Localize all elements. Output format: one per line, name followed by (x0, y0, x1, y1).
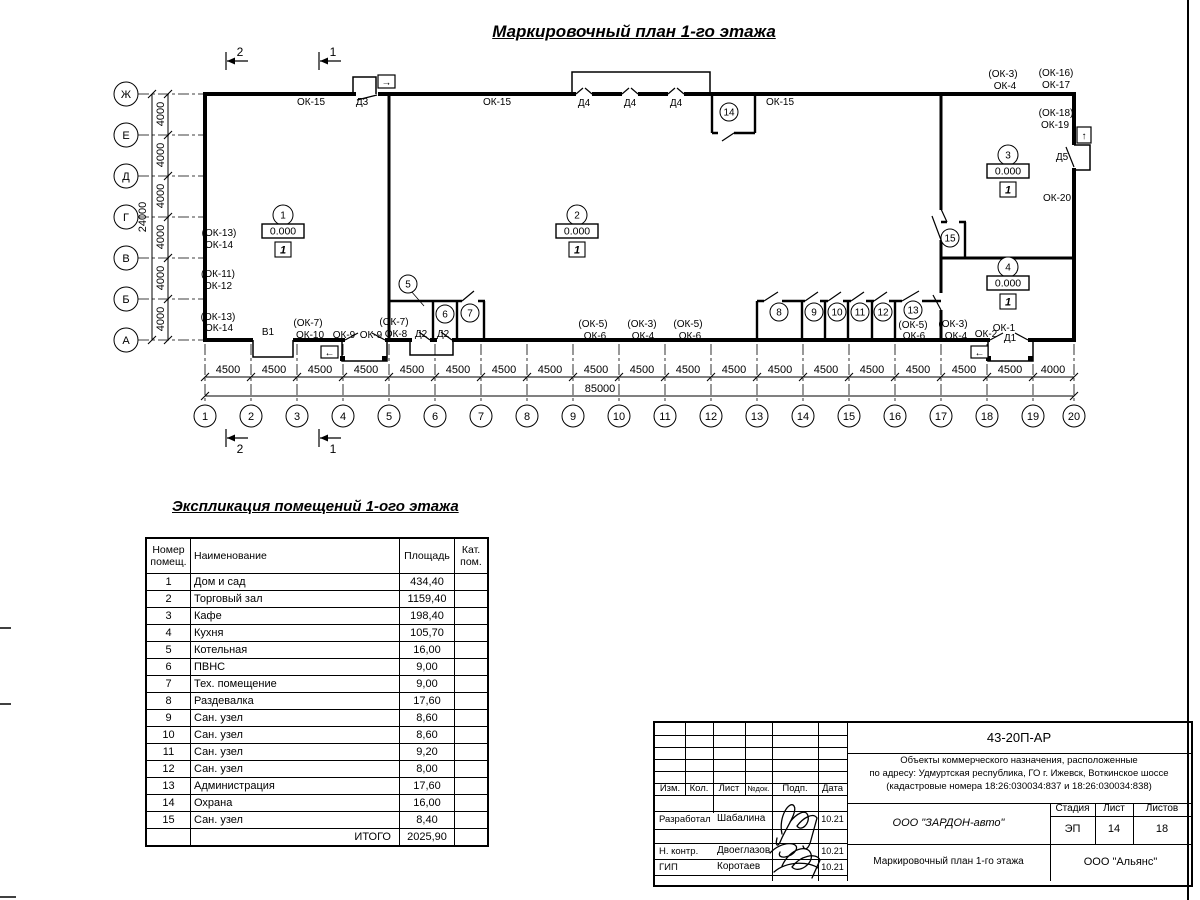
header-list: Лист (713, 783, 745, 795)
opening-label: ОК-9 (360, 330, 383, 341)
explication-cell-area: 105,70 (400, 625, 455, 642)
explication-cell-area: 198,40 (400, 608, 455, 625)
porch-corner-marks (340, 356, 1033, 361)
wall-mark (847, 92, 851, 96)
dim-4000: 4000 (155, 184, 167, 208)
opening-label: ОК-4 (632, 331, 655, 342)
opening-label: ОК-6 (584, 331, 607, 342)
opening-label: Д2 (437, 329, 450, 340)
wall-mark (1031, 92, 1035, 96)
explication-cell-cat (455, 591, 489, 608)
explication-cell-num: 11 (146, 744, 191, 761)
dim-4500: 4500 (676, 364, 700, 376)
explication-cell-cat (455, 608, 489, 625)
role-date: 10.21 (818, 845, 847, 858)
wall-mark (387, 92, 391, 96)
dim-4500: 4500 (216, 364, 240, 376)
project-description-line1: Объекты коммерческого назначения, распол… (851, 754, 1187, 767)
dim-4500: 4500 (860, 364, 884, 376)
opening-label: Д1 (1004, 333, 1017, 344)
room-number: 7 (467, 309, 473, 320)
explication-cell-num: 15 (146, 812, 191, 829)
explication-cell-name: Сан. узел (191, 710, 400, 727)
room-number: 15 (944, 234, 956, 245)
row-axis-label: Е (122, 130, 129, 142)
elevation-value: 0.000 (995, 166, 1021, 178)
opening-label: (ОК-13) (202, 228, 237, 239)
explication-row: 2Торговый зал1159,40 (146, 591, 488, 608)
explication-row: 5Котельная16,00 (146, 642, 488, 659)
col-axis-label: 5 (386, 411, 392, 423)
explication-cell-cat (455, 812, 489, 829)
wall-mark (709, 92, 713, 96)
wall-mark (571, 338, 575, 342)
row-axis-label: В (122, 253, 129, 265)
opening-label: ОК-14 (205, 240, 233, 251)
doc-number: 43-20П-АР (847, 725, 1191, 751)
dim-4500: 4500 (768, 364, 792, 376)
plan-title: Маркировочный план 1-го этажа (492, 22, 776, 42)
explication-row: 1Дом и сад434,40 (146, 574, 488, 591)
explication-cell-area: 9,00 (400, 659, 455, 676)
room-number: 1 (280, 211, 286, 222)
opening-label: ОК-12 (204, 281, 232, 292)
col-header-number: Номер помещ. (146, 538, 191, 574)
explication-cell-cat (455, 574, 489, 591)
col-axis-label: 13 (751, 411, 763, 423)
explication-cell-name: Сан. узел (191, 812, 400, 829)
explication-cell-num: 7 (146, 676, 191, 693)
wall-mark (801, 338, 805, 342)
explication-cell-name: Тех. помещение (191, 676, 400, 693)
opening-label: (ОК-3) (988, 69, 1017, 80)
dim-4000: 4000 (155, 307, 167, 331)
role-date: 10.21 (818, 861, 847, 874)
opening-label: ОК-19 (1041, 120, 1069, 131)
col-axis-label: 6 (432, 411, 438, 423)
role-name: Коротаев (713, 861, 776, 874)
explication-table: Номер помещ. Наименование Площадь Кат. п… (145, 537, 489, 847)
wall-mark (1072, 338, 1076, 342)
explication-cell-area: 9,20 (400, 744, 455, 761)
wall-mark (709, 338, 713, 342)
col-axis-label: 16 (889, 411, 901, 423)
opening-label: (ОК-5) (578, 319, 607, 330)
wall-mark (203, 338, 207, 342)
header-kol: Кол. (685, 783, 713, 795)
wall-mark (1031, 338, 1035, 342)
dim-4500: 4500 (262, 364, 286, 376)
room-number: 9 (811, 308, 817, 319)
opening-label: ОК-15 (766, 97, 794, 108)
explication-cell-area: 8,00 (400, 761, 455, 778)
opening-label: (ОК-3) (627, 319, 656, 330)
explication-cell-cat (455, 744, 489, 761)
dim-total-85000: 85000 (585, 383, 616, 395)
explication-cell-area: 8,40 (400, 812, 455, 829)
section-mark-number: 1 (330, 442, 337, 456)
opening-label: (ОК-7) (293, 318, 322, 329)
explication-cell-area: 8,60 (400, 727, 455, 744)
dim-4500: 4500 (400, 364, 424, 376)
dim-4000: 4000 (155, 143, 167, 167)
opening-label: (ОК-5) (673, 319, 702, 330)
wall-mark (203, 92, 207, 96)
company-name: ООО "ЗАРДОН-авто" (847, 803, 1050, 844)
wall-mark (203, 297, 207, 301)
col-axis-label: 3 (294, 411, 300, 423)
wall-mark (203, 215, 207, 219)
opening-label: ОК-8 (385, 329, 408, 340)
explication-cell-name: Кухня (191, 625, 400, 642)
opening-label: В1 (262, 327, 275, 338)
opening-label: Д4 (578, 98, 591, 109)
opening-label: (ОК-18) (1039, 108, 1074, 119)
section-mark-arrow (320, 58, 328, 65)
sheets-label: Листов (1133, 803, 1191, 816)
explication-cell-num: 9 (146, 710, 191, 727)
opening-label: (ОК-16) (1039, 68, 1074, 79)
explication-cell-num: 12 (146, 761, 191, 778)
explication-cell-name: Дом и сад (191, 574, 400, 591)
col-axis-label: 20 (1068, 411, 1080, 423)
explication-header-row: Номер помещ. Наименование Площадь Кат. п… (146, 538, 488, 574)
room-number: 4 (1005, 263, 1011, 274)
explication-total-row: ИТОГО2025,90 (146, 829, 488, 847)
col-axis-label: 8 (524, 411, 530, 423)
dim-4000: 4000 (155, 225, 167, 249)
explication-cell-area: 8,60 (400, 710, 455, 727)
explication-cell-name: ПВНС (191, 659, 400, 676)
role-title: Разработал (655, 813, 717, 826)
opening-label: (ОК-7) (379, 317, 408, 328)
explication-cell-area: 16,00 (400, 795, 455, 812)
col-axis-label: 11 (659, 411, 670, 423)
wall-mark (847, 338, 851, 342)
wall-mark (341, 92, 345, 96)
opening-label: ОК-6 (679, 331, 702, 342)
explication-cell-cat (455, 727, 489, 744)
role-date: 10.21 (818, 813, 847, 826)
dim-4500: 4500 (998, 364, 1022, 376)
dim-4500: 4500 (354, 364, 378, 376)
sheet-label: Лист (1095, 803, 1133, 816)
explication-cell-cat (455, 761, 489, 778)
col-axis-label: 9 (570, 411, 576, 423)
floor-type-value: 1 (280, 245, 286, 257)
explication-row: 14Охрана16,00 (146, 795, 488, 812)
dim-4500: 4500 (446, 364, 470, 376)
room-number: 8 (776, 308, 782, 319)
section-mark-arrow (227, 435, 235, 442)
elevation-value: 0.000 (270, 226, 296, 238)
plan-annotations: ЖЕДГВБА123456789101112131415161718192024… (114, 45, 1091, 456)
room-number: 13 (907, 306, 919, 317)
wall-mark (985, 92, 989, 96)
project-description-line2: по адресу: Удмуртская республика, ГО г. … (851, 767, 1187, 780)
wall-mark (1072, 92, 1076, 96)
total-empty (455, 829, 489, 847)
explication-cell-num: 13 (146, 778, 191, 795)
total-empty (146, 829, 191, 847)
wall-mark (203, 174, 207, 178)
exit-arrow-icon: ↑ (1082, 131, 1087, 142)
explication-cell-name: Раздевалка (191, 693, 400, 710)
explication-cell-cat (455, 659, 489, 676)
partition-walls (389, 94, 966, 340)
sheet-value: 14 (1095, 816, 1133, 844)
opening-label: (ОК-13) (201, 312, 236, 323)
opening-label: Д4 (670, 98, 683, 109)
header-data: Дата (818, 783, 847, 795)
col-axis-label: 12 (705, 411, 717, 423)
floor-type-value: 1 (574, 245, 580, 257)
col-axis-label: 17 (935, 411, 947, 423)
row-axis-label: Г (123, 212, 129, 224)
col-axis-label: 14 (797, 411, 809, 423)
room-number: 6 (442, 310, 448, 321)
explication-cell-name: Сан. узел (191, 761, 400, 778)
explication-row: 11Сан. узел9,20 (146, 744, 488, 761)
wall-mark (893, 338, 897, 342)
dim-4500: 4500 (722, 364, 746, 376)
explication-cell-name: Охрана (191, 795, 400, 812)
wall-mark (249, 338, 253, 342)
wall-mark (525, 338, 529, 342)
explication-cell-area: 434,40 (400, 574, 455, 591)
opening-label: (ОК-5) (898, 320, 927, 331)
col-axis-label: 2 (248, 411, 254, 423)
col-header-category: Кат. пом. (455, 538, 489, 574)
explication-cell-area: 17,60 (400, 778, 455, 795)
opening-label: (ОК-11) (201, 269, 235, 280)
col-axis-label: 15 (843, 411, 855, 423)
explication-title: Экспликация помещений 1-ого этажа (172, 498, 459, 515)
role-title: Н. контр. (655, 845, 717, 858)
opening-label: ОК-17 (1042, 80, 1070, 91)
explication-cell-area: 17,60 (400, 693, 455, 710)
explication-cell-cat (455, 642, 489, 659)
leader-line-room5 (411, 291, 424, 306)
room-number: 12 (877, 308, 889, 319)
opening-label: ОК-9 (333, 330, 356, 341)
section-mark-number: 1 (330, 45, 337, 59)
drawing-sheet: ЖЕДГВБА123456789101112131415161718192024… (0, 0, 1200, 900)
interior-walls (389, 94, 1074, 340)
explication-cell-num: 5 (146, 642, 191, 659)
project-description-line3: (кадастровые номера 18:26:030034:837 и 1… (851, 780, 1187, 793)
opening-label: ОК-20 (1043, 193, 1071, 204)
dim-4500: 4500 (308, 364, 332, 376)
sheets-value: 18 (1133, 816, 1191, 844)
room-number: 3 (1005, 151, 1011, 162)
explication-cell-cat (455, 778, 489, 795)
wall-mark (203, 256, 207, 260)
explication-cell-cat (455, 625, 489, 642)
contractor-name: ООО "Альянс" (1050, 844, 1191, 881)
header-izm: Изм. (655, 783, 685, 795)
dim-4500: 4500 (814, 364, 838, 376)
dim-total-24000: 24000 (137, 202, 149, 233)
wall-mark (295, 92, 299, 96)
explication-row: 10Сан. узел8,60 (146, 727, 488, 744)
explication-cell-num: 1 (146, 574, 191, 591)
explication-cell-cat (455, 693, 489, 710)
opening-label: ОК-15 (483, 97, 511, 108)
dim-4500: 4500 (538, 364, 562, 376)
room-number: 10 (831, 308, 843, 319)
dim-4000: 4000 (155, 102, 167, 126)
explication-cell-area: 9,00 (400, 676, 455, 693)
role-name: Двоеглазов (713, 845, 776, 858)
opening-label: ОК-6 (903, 331, 926, 342)
wall-mark (663, 92, 667, 96)
row-axis-label: Ж (121, 89, 131, 101)
opening-label: Д3 (356, 97, 369, 108)
role-title: ГИП (655, 861, 717, 874)
dim-4500: 4500 (906, 364, 930, 376)
explication-cell-name: Администрация (191, 778, 400, 795)
opening-label: ОК-10 (296, 330, 324, 341)
opening-label: (ОК-3) (938, 319, 967, 330)
col-header-name: Наименование (191, 538, 400, 574)
wall-mark (203, 133, 207, 137)
explication-cell-name: Котельная (191, 642, 400, 659)
room-number: 14 (723, 108, 735, 119)
explication-cell-area: 1159,40 (400, 591, 455, 608)
exit-arrow-icon: ← (975, 348, 985, 359)
room-number: 5 (405, 280, 411, 291)
wall-mark (893, 92, 897, 96)
explication-cell-num: 10 (146, 727, 191, 744)
section-mark-number: 2 (237, 442, 244, 456)
explication-row: 4Кухня105,70 (146, 625, 488, 642)
dim-4500: 4500 (952, 364, 976, 376)
explication-row: 13Администрация17,60 (146, 778, 488, 795)
opening-label: Д4 (624, 98, 637, 109)
opening-label: ОК-15 (297, 97, 325, 108)
total-label: ИТОГО (191, 829, 400, 847)
wall-mark (433, 92, 437, 96)
explication-row: 6ПВНС9,00 (146, 659, 488, 676)
col-axis-label: 4 (340, 411, 346, 423)
explication-cell-num: 8 (146, 693, 191, 710)
wall-mark (479, 92, 483, 96)
explication-row: 3Кафе198,40 (146, 608, 488, 625)
header-ndok: №док. (745, 783, 772, 795)
wall-mark (617, 92, 621, 96)
wall-mark (755, 92, 759, 96)
elevation-value: 0.000 (995, 278, 1021, 290)
exit-arrow-icon: ← (325, 348, 335, 359)
explication-row: 12Сан. узел8,00 (146, 761, 488, 778)
wall-mark (525, 92, 529, 96)
explication-row: 9Сан. узел8,60 (146, 710, 488, 727)
room-number: 11 (855, 308, 866, 319)
explication-cell-cat (455, 795, 489, 812)
dim-4500: 4000 (1041, 364, 1065, 376)
col-axis-label: 7 (478, 411, 484, 423)
role-name: Шабалина (713, 813, 776, 826)
explication-row: 15Сан. узел8,40 (146, 812, 488, 829)
exit-arrow-icon: → (382, 78, 392, 89)
explication-row: 8Раздевалка17,60 (146, 693, 488, 710)
header-podp: Подп. (772, 783, 818, 795)
stage-label: Стадия (1050, 803, 1095, 816)
explication-cell-name: Торговый зал (191, 591, 400, 608)
explication-cell-area: 16,00 (400, 642, 455, 659)
col-axis-label: 19 (1027, 411, 1039, 423)
dim-4000: 4000 (155, 266, 167, 290)
wall-mark (479, 338, 483, 342)
wall-mark (939, 92, 943, 96)
explication-cell-num: 6 (146, 659, 191, 676)
explication-cell-num: 2 (146, 591, 191, 608)
dim-4500: 4500 (630, 364, 654, 376)
room-number: 2 (574, 211, 580, 222)
explication-cell-name: Кафе (191, 608, 400, 625)
dim-4500: 4500 (492, 364, 516, 376)
row-axis-label: Д (122, 171, 130, 183)
explication-cell-cat (455, 676, 489, 693)
total-value: 2025,90 (400, 829, 455, 847)
row-axis-label: А (122, 335, 130, 347)
wall-mark (617, 338, 621, 342)
section-mark-number: 2 (237, 45, 244, 59)
col-axis-label: 10 (613, 411, 625, 423)
opening-label: Д2 (415, 329, 428, 340)
drawing-title: Маркировочный план 1-го этажа (847, 844, 1050, 881)
wall-mark (939, 338, 943, 342)
elevation-value: 0.000 (564, 226, 590, 238)
dim-4500: 4500 (584, 364, 608, 376)
wall-mark (249, 92, 253, 96)
col-axis-label: 1 (202, 411, 208, 423)
wall-mark (801, 92, 805, 96)
explication-cell-num: 14 (146, 795, 191, 812)
stage-value: ЭП (1050, 816, 1095, 844)
opening-label: Д5 (1056, 152, 1069, 163)
col-header-area: Площадь (400, 538, 455, 574)
floor-type-value: 1 (1005, 185, 1011, 197)
section-mark-arrow (227, 58, 235, 65)
explication-cell-name: Сан. узел (191, 727, 400, 744)
opening-label: ОК-14 (205, 323, 233, 334)
explication-cell-num: 4 (146, 625, 191, 642)
explication-row: 7Тех. помещение9,00 (146, 676, 488, 693)
floor-type-value: 1 (1005, 297, 1011, 309)
opening-label: ОК-4 (994, 81, 1017, 92)
title-block: 43-20П-АР Объекты коммерческого назначен… (653, 721, 1193, 887)
explication-cell-name: Сан. узел (191, 744, 400, 761)
row-axis-label: Б (122, 294, 129, 306)
wall-mark (755, 338, 759, 342)
wall-mark (571, 92, 575, 96)
explication-cell-cat (455, 710, 489, 727)
explication-cell-num: 3 (146, 608, 191, 625)
wall-mark (663, 338, 667, 342)
opening-label: ОК-4 (945, 331, 968, 342)
col-axis-label: 18 (981, 411, 993, 423)
signature-dvoeglazov-korotaev (770, 844, 820, 878)
section-mark-arrow (320, 435, 328, 442)
